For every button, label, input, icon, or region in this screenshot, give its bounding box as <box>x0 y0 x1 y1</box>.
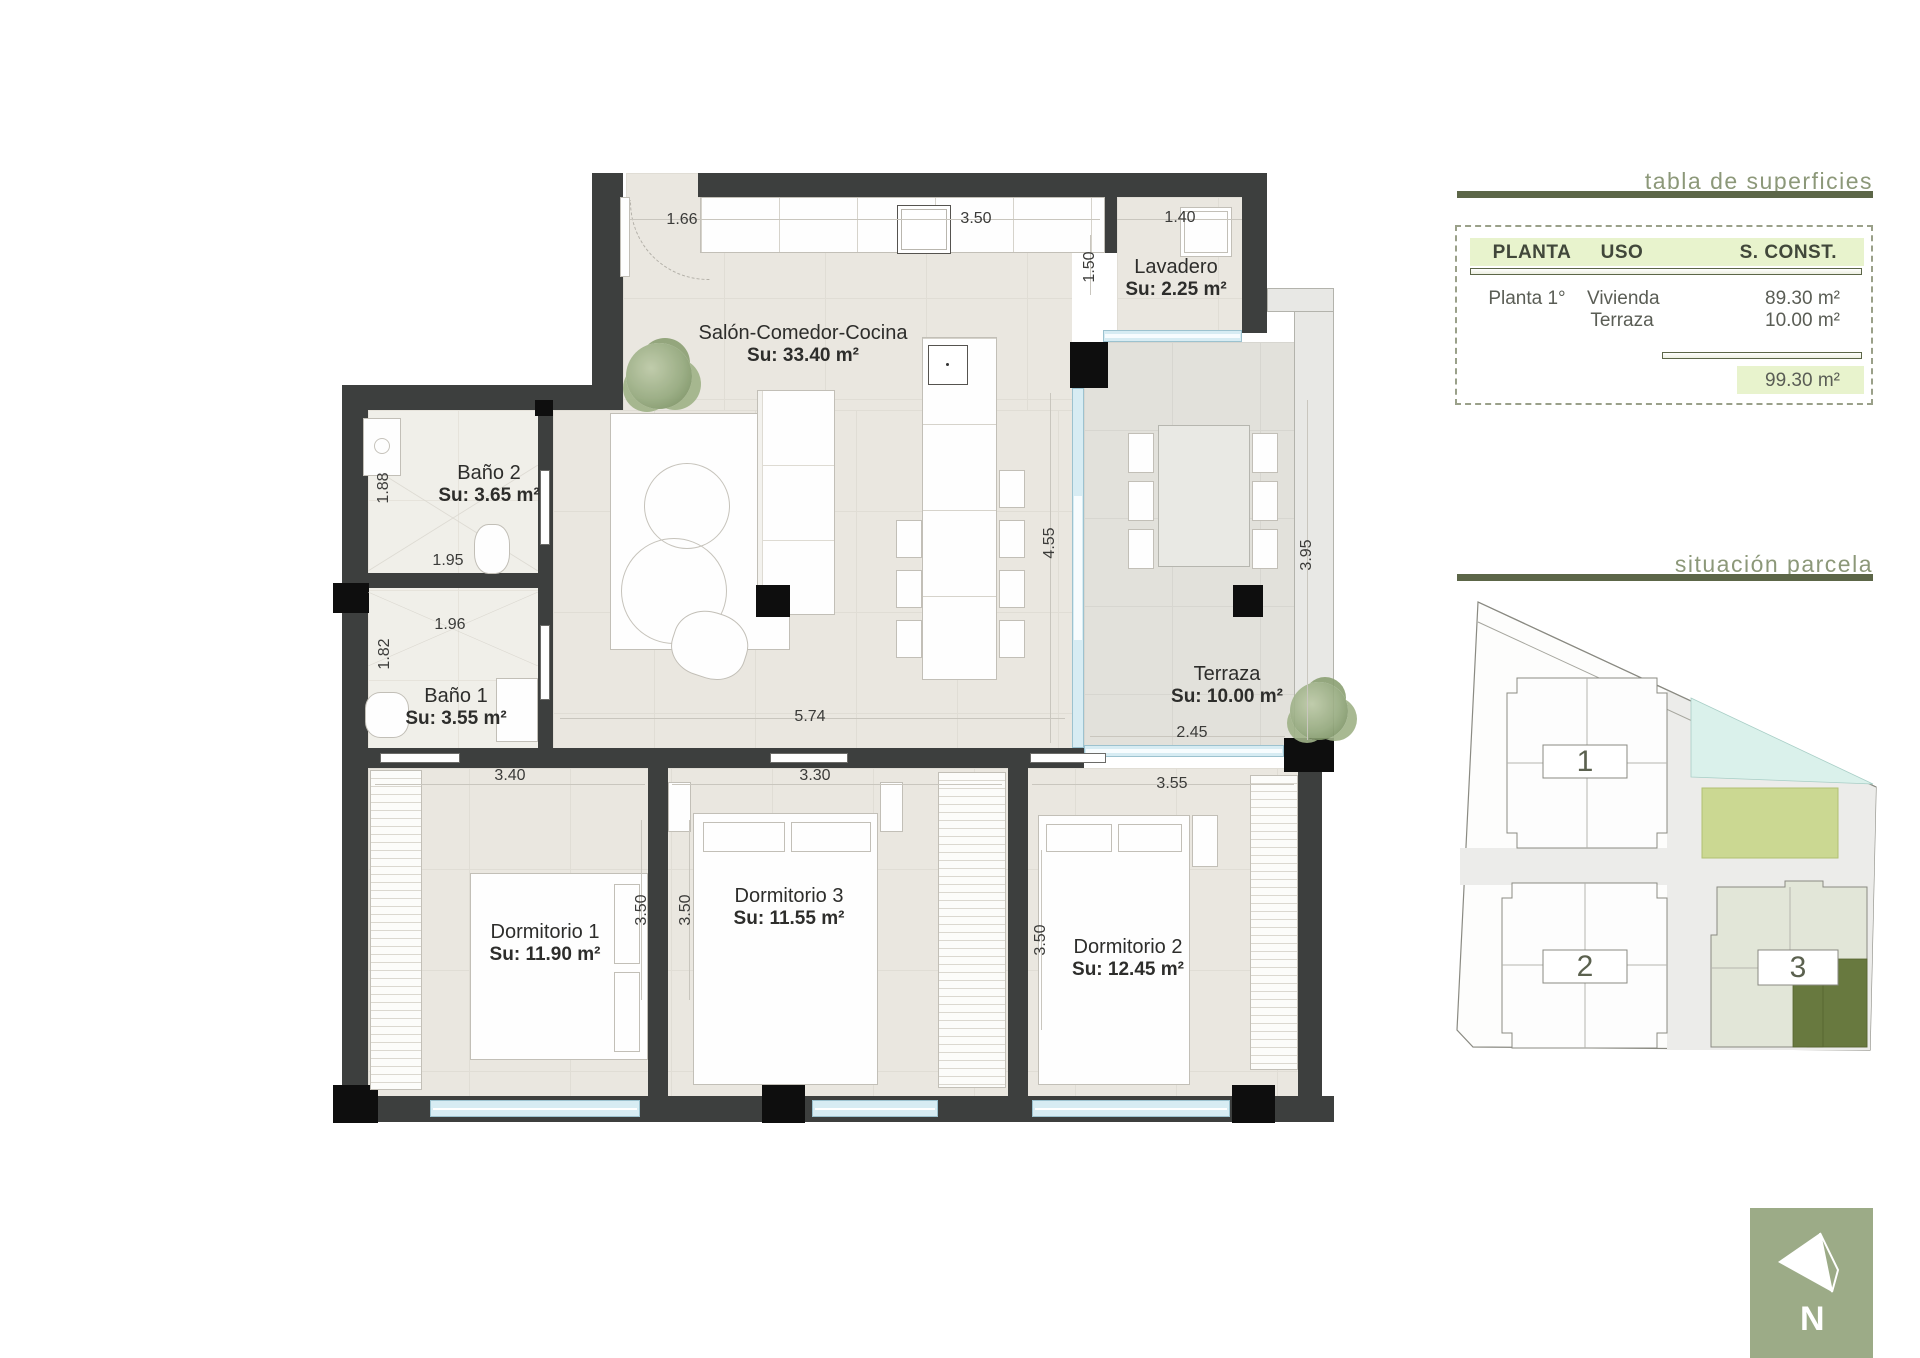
island-chair <box>999 570 1025 608</box>
dim-kitchen-top: 3.50 <box>960 210 991 228</box>
wall-divider-dorm3-dorm2 <box>1008 768 1028 1096</box>
dorm3-window <box>812 1100 938 1117</box>
site-plan: 1 2 3 <box>1455 595 1880 1060</box>
terraza-table <box>1158 425 1250 567</box>
dim-bano1-w: 1.96 <box>434 616 465 634</box>
bano2-toilet <box>474 524 510 574</box>
dorm3-bed <box>693 813 878 1085</box>
surfaces-title-rule <box>1457 191 1873 198</box>
dorm3-nightstand <box>668 782 691 832</box>
wall-lavadero-right <box>1242 173 1267 333</box>
dim-bano1-h: 1.82 <box>376 638 394 669</box>
room-name: Dormitorio 1 <box>490 921 601 944</box>
dim-dorm1-h: 3.50 <box>633 894 651 925</box>
island-chair <box>896 620 922 658</box>
site-plan-drawing: 1 2 3 <box>1455 595 1880 1060</box>
dim-dorm3-w: 3.30 <box>799 767 830 785</box>
dim-bano2-w: 1.95 <box>432 552 463 570</box>
plant-icon <box>626 343 692 409</box>
terraza-chair <box>1128 529 1154 569</box>
row-uso: Vivienda <box>1587 288 1657 310</box>
north-label: N <box>1800 1300 1825 1339</box>
room-area: Su: 3.65 m² <box>438 485 539 507</box>
dorm1-door <box>380 753 460 763</box>
dorm2-nightstand <box>1192 815 1218 867</box>
dorm1-window <box>430 1100 640 1117</box>
wall-right-bedrooms <box>1298 757 1322 1122</box>
wall-lavadero-left <box>1105 173 1117 253</box>
room-name: Baño 2 <box>438 462 539 485</box>
room-area: Su: 11.55 m² <box>734 908 845 930</box>
coffee-table <box>644 463 730 549</box>
sofa <box>757 390 835 615</box>
dorm1-wardrobe <box>370 770 422 1090</box>
header-rule <box>1470 268 1862 275</box>
row-sconst: 10.00 m² <box>1697 310 1840 332</box>
room-label-dorm2: Dormitorio 2 Su: 12.45 m² <box>1072 936 1184 981</box>
island-chair <box>999 470 1025 508</box>
row-uso: Terraza <box>1587 310 1657 332</box>
total-value: 99.30 m² <box>1697 370 1840 392</box>
bano1-door <box>540 625 550 700</box>
dorm2-wardrobe <box>1250 775 1298 1070</box>
pillar-bottom-right <box>1232 1085 1275 1123</box>
room-area: Su: 3.55 m² <box>405 708 506 730</box>
kitchen-oven <box>897 205 951 254</box>
island-chair <box>896 570 922 608</box>
room-label-salon: Salón-Comedor-Cocina Su: 33.40 m² <box>699 322 908 367</box>
pillar-left-wall <box>333 583 369 613</box>
dim-terraza-w: 2.45 <box>1176 724 1207 742</box>
room-name: Dormitorio 3 <box>734 885 845 908</box>
dim-lavadero-side: 1.50 <box>1081 251 1099 282</box>
dim-terraza-h: 3.95 <box>1298 539 1316 570</box>
terraza-glass-left <box>1072 388 1084 748</box>
dim-salon-h: 4.55 <box>1041 527 1059 558</box>
bano2-door <box>540 470 550 545</box>
lavadero-window <box>1103 330 1242 342</box>
room-name: Dormitorio 2 <box>1072 936 1184 959</box>
dorm2-door <box>1030 753 1106 763</box>
plant-icon <box>1290 682 1348 740</box>
entry-door-leaf <box>620 197 630 277</box>
room-name: Lavadero <box>1125 256 1226 279</box>
kitchen-island <box>922 337 997 680</box>
terraza-chair <box>1252 529 1278 569</box>
room-area: Su: 33.40 m² <box>699 345 908 367</box>
room-label-dorm3: Dormitorio 3 Su: 11.55 m² <box>734 885 845 930</box>
room-name: Baño 1 <box>405 685 506 708</box>
header-uso: USO <box>1587 242 1657 264</box>
room-area: Su: 11.90 m² <box>490 944 601 966</box>
wall-bano2-top <box>342 385 623 410</box>
wall-top <box>698 173 1267 197</box>
row-sconst: 89.30 m² <box>1697 288 1840 310</box>
dorm3-wardrobe <box>938 772 1006 1088</box>
wall-divider-dorm1-dorm3 <box>648 768 668 1096</box>
terraza-chair <box>1128 481 1154 521</box>
cooktop-dot <box>946 363 949 366</box>
surfaces-table: PLANTA USO S. CONST. Planta 1° Vivienda … <box>1455 225 1873 405</box>
pillar-banos-top <box>535 400 553 416</box>
building-2-label: 2 <box>1577 950 1594 983</box>
dim-entry: 1.66 <box>666 211 697 229</box>
dorm3-nightstand <box>880 782 903 832</box>
pillar-terraza-bottomright <box>1284 738 1334 772</box>
dim-bano2-h: 1.88 <box>375 472 393 503</box>
wall-entry-column <box>592 173 623 410</box>
wall-banos-divider <box>342 573 553 588</box>
building-1-label: 1 <box>1577 745 1594 778</box>
dorm3-door <box>770 753 848 763</box>
pillar-terraza-topleft <box>1070 342 1108 388</box>
header-sconst: S. CONST. <box>1697 242 1837 264</box>
island-chair <box>999 520 1025 558</box>
site-title-rule <box>1457 574 1873 581</box>
island-chair <box>999 620 1025 658</box>
floor-plan: Salón-Comedor-Cocina Su: 33.40 m² Lavade… <box>0 0 1460 1358</box>
terraza-chair <box>1128 433 1154 473</box>
header-planta: PLANTA <box>1492 242 1572 264</box>
dim-lavadero-top: 1.40 <box>1164 209 1195 227</box>
dim-line <box>1050 393 1051 743</box>
dim-dorm2-w: 3.55 <box>1156 775 1187 793</box>
pillar-terraza-mid <box>1233 585 1263 617</box>
pillar-salon <box>756 585 790 617</box>
terraza-chair <box>1252 481 1278 521</box>
total-rule <box>1662 352 1862 359</box>
pillar-bottom-left <box>333 1085 378 1123</box>
entry-gap-floor <box>626 173 698 199</box>
dorm2-pillow <box>1046 824 1112 852</box>
pillar-bottom-mid <box>762 1085 805 1123</box>
dim-salon-w: 5.74 <box>794 708 825 726</box>
dorm3-pillow <box>791 822 871 852</box>
room-label-lavadero: Lavadero Su: 2.25 m² <box>1125 256 1226 301</box>
dim-dorm2-h: 3.50 <box>1032 924 1050 955</box>
island-chair <box>896 520 922 558</box>
dim-line <box>630 219 1100 220</box>
room-area: Su: 10.00 m² <box>1171 686 1283 708</box>
building-3-label: 3 <box>1790 951 1807 984</box>
room-name: Terraza <box>1171 663 1283 686</box>
terrace-outer-cap <box>1267 288 1334 312</box>
room-area: Su: 12.45 m² <box>1072 959 1184 981</box>
dim-dorm3-h: 3.50 <box>677 894 695 925</box>
north-compass: N <box>1750 1208 1873 1358</box>
room-label-bano1: Baño 1 Su: 3.55 m² <box>405 685 506 730</box>
terraza-glass-bottom <box>1084 745 1284 757</box>
dorm2-window <box>1032 1100 1230 1117</box>
room-area: Su: 2.25 m² <box>1125 279 1226 301</box>
terraza-chair <box>1252 433 1278 473</box>
dorm1-pillow <box>614 972 640 1052</box>
bano1-toilet <box>365 692 409 738</box>
row-planta: Planta 1° <box>1477 288 1577 310</box>
dim-dorm1-w: 3.40 <box>494 767 525 785</box>
dorm3-pillow <box>703 822 785 852</box>
dim-line <box>672 784 1002 785</box>
dorm2-pillow <box>1118 824 1182 852</box>
room-name: Salón-Comedor-Cocina <box>699 322 908 345</box>
room-label-dorm1: Dormitorio 1 Su: 11.90 m² <box>490 921 601 966</box>
bano2-sink-bowl <box>374 438 390 454</box>
room-label-terraza: Terraza Su: 10.00 m² <box>1171 663 1283 708</box>
room-label-bano2: Baño 2 Su: 3.65 m² <box>438 462 539 507</box>
